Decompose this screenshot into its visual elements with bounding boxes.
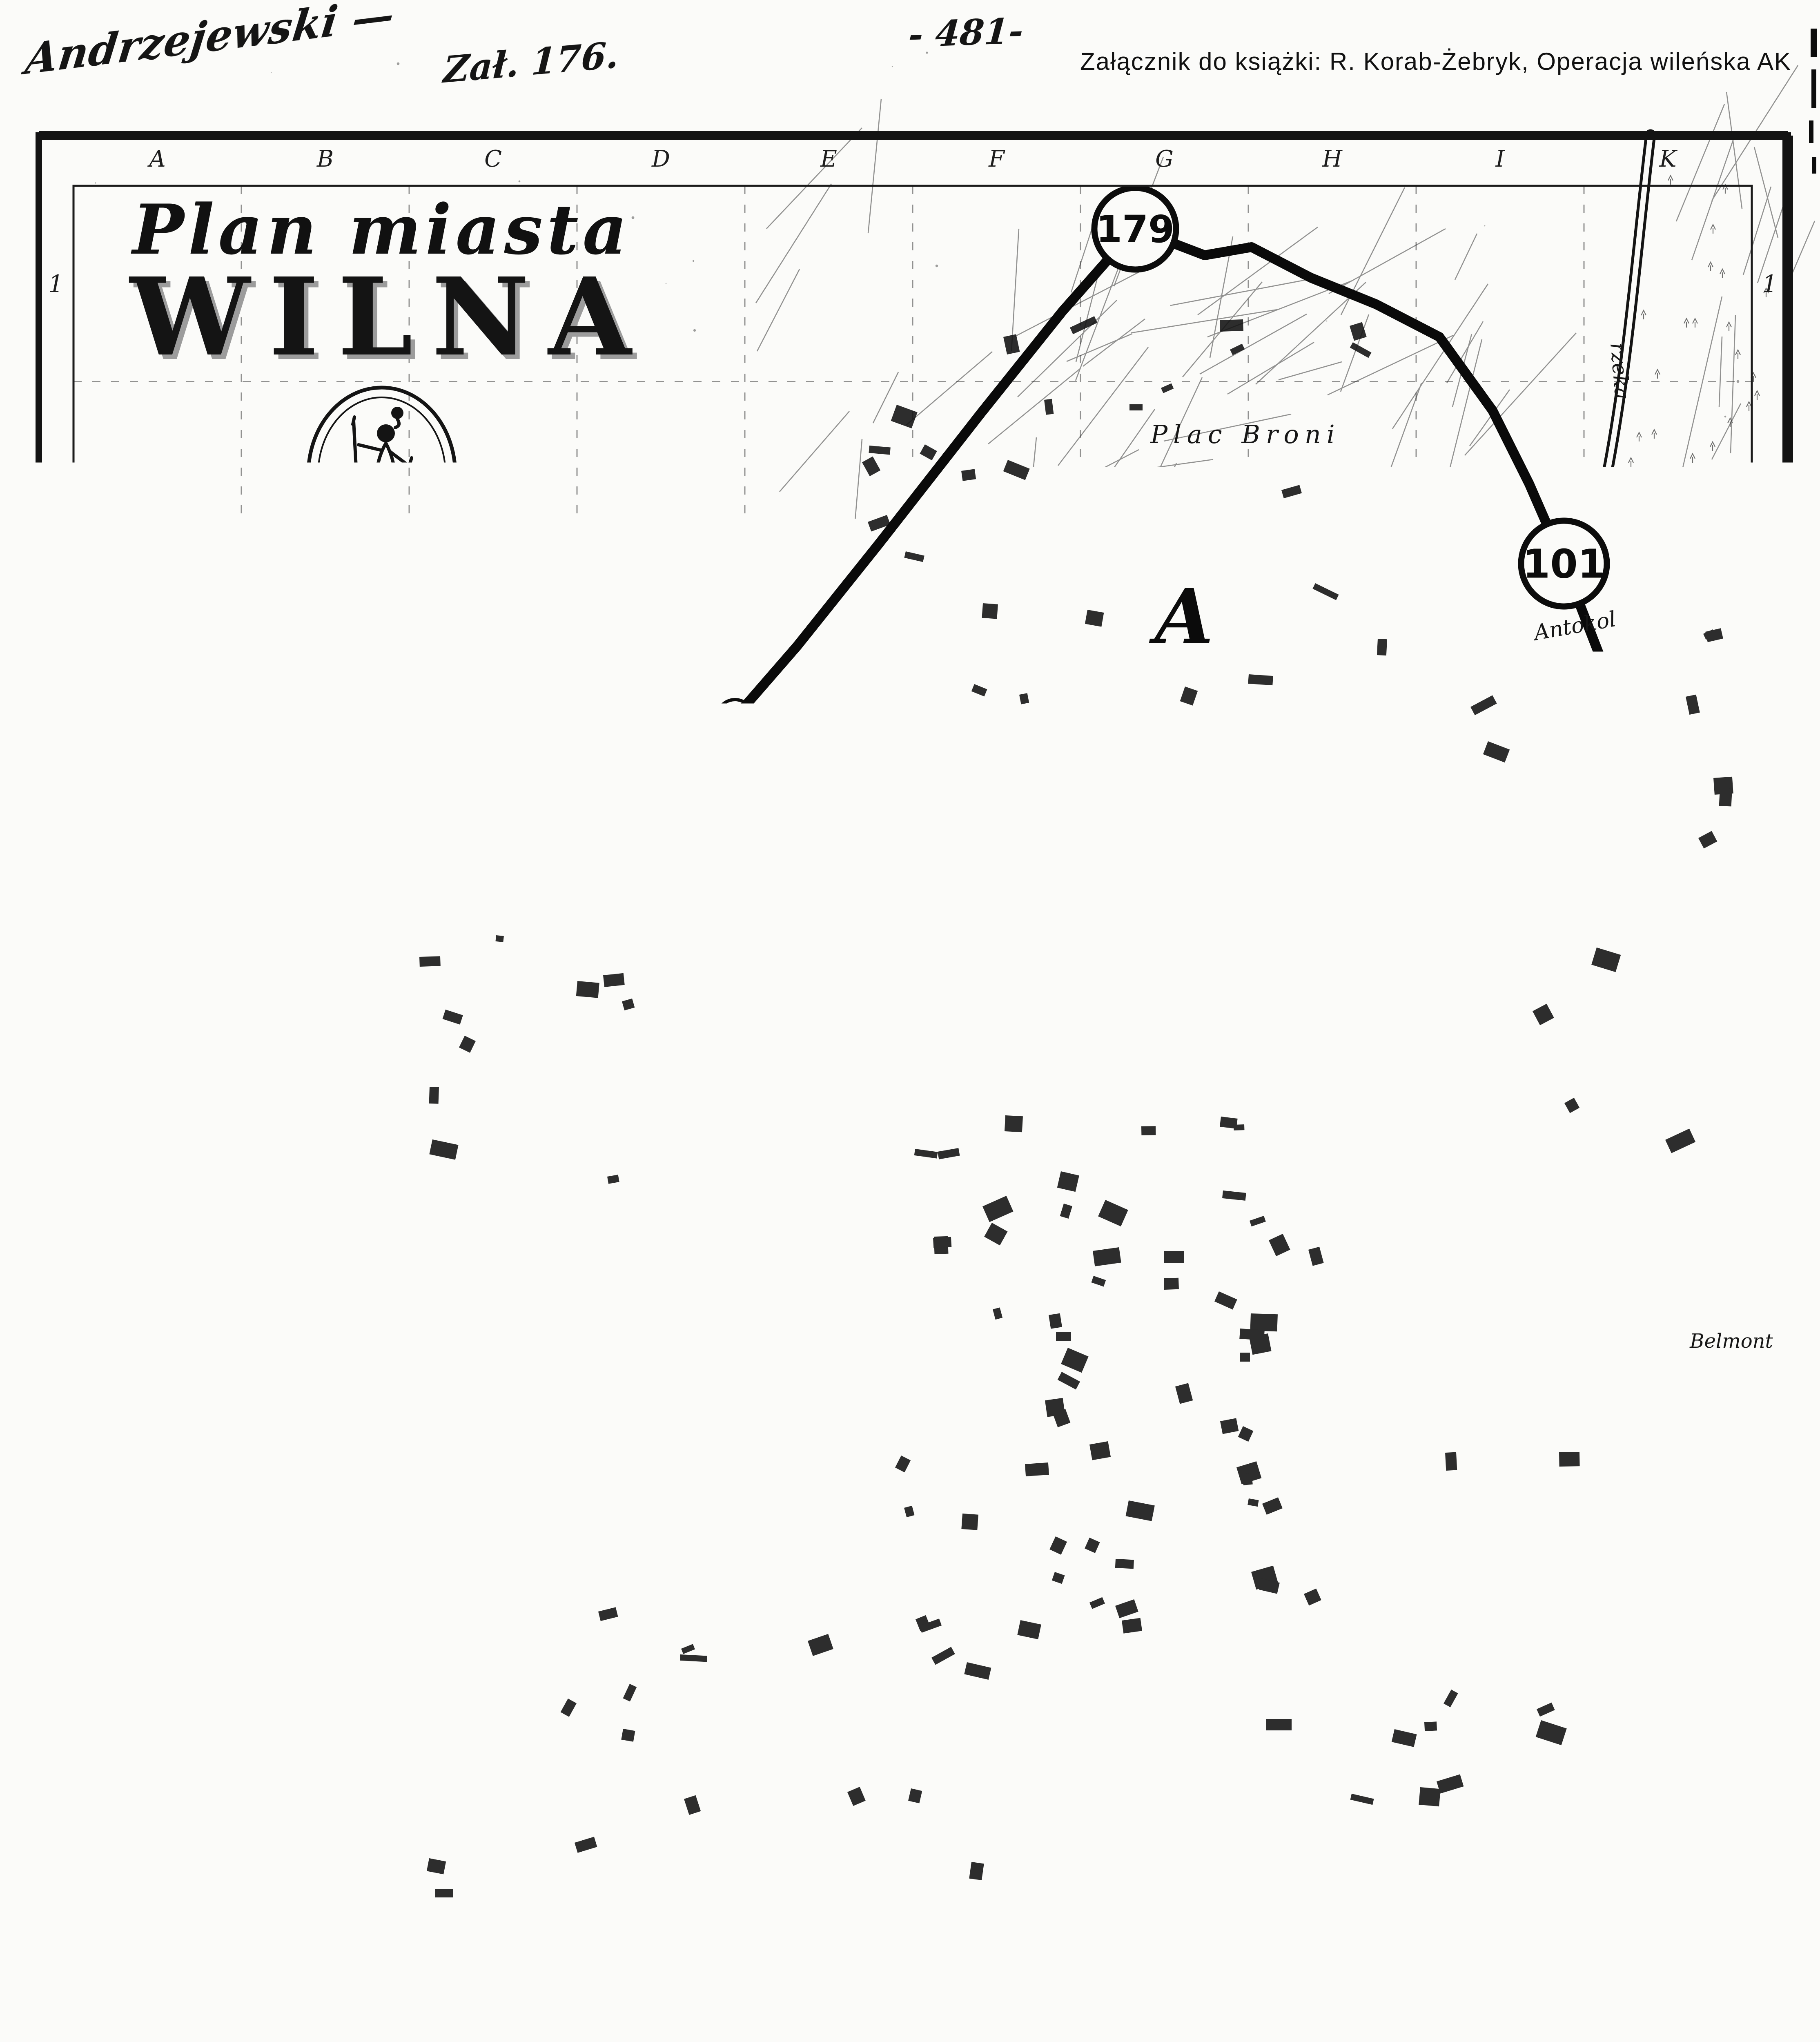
- tree-icon: [226, 1630, 231, 1639]
- street-line: [1041, 1117, 1188, 1127]
- street-line: [472, 1140, 521, 1191]
- building-block: [1049, 1313, 1062, 1329]
- building-block: [575, 1837, 597, 1853]
- tree-icon: [364, 1558, 369, 1567]
- place-label: Góra Bouffałowa: [784, 1241, 971, 1280]
- tree-icon: [319, 1400, 324, 1409]
- sector-letter-C: C: [859, 1458, 921, 1549]
- strongpoint-number: 106: [1660, 898, 1738, 941]
- saint-christopher-figure: [331, 407, 437, 553]
- street-line: [1309, 1342, 1472, 1361]
- street-line: [617, 938, 689, 1089]
- tree-icon: [1684, 319, 1689, 328]
- tree-icon: [295, 1315, 300, 1324]
- building-block: [1164, 1278, 1179, 1290]
- grid-number: 3: [1762, 662, 1778, 689]
- tree-icon: [1639, 474, 1644, 483]
- street-line: [1337, 1486, 1427, 1528]
- tree-icon: [1735, 350, 1740, 359]
- building-block: [1175, 1383, 1193, 1404]
- building-block: [1686, 695, 1700, 715]
- railway-path: [286, 1756, 1000, 2042]
- street-line: [1023, 1582, 1087, 1600]
- noise-dot: [1042, 1979, 1043, 1980]
- building-block: [1266, 1719, 1292, 1730]
- street-line: [725, 1579, 779, 1625]
- tree-icon: [1485, 862, 1490, 871]
- street-line: [817, 1766, 908, 1796]
- tree-icon: [168, 1318, 173, 1327]
- street-line: [757, 269, 800, 351]
- building-block: [1060, 1204, 1072, 1219]
- tree-icon: [270, 1351, 274, 1360]
- building-block: [1234, 1124, 1244, 1130]
- tree-icon: [247, 1402, 252, 1411]
- tree-icon: [1655, 370, 1660, 379]
- building-block: [1392, 1729, 1417, 1747]
- tree-icon: [1690, 454, 1695, 463]
- building-block: [419, 956, 441, 967]
- street-line: [1108, 459, 1213, 474]
- tree-icon: [1599, 1147, 1604, 1156]
- tree-icon: [264, 1621, 269, 1630]
- noise-dot: [627, 1453, 628, 1454]
- tree-icon: [55, 1906, 60, 1915]
- tree-icon: [1444, 1085, 1449, 1094]
- street-line: [1300, 1400, 1406, 1420]
- tree-icon: [1435, 1216, 1439, 1225]
- street-line: [1122, 1593, 1259, 1625]
- street-line: [859, 1123, 909, 1135]
- street-line: [963, 1407, 1097, 1421]
- building-block: [1085, 1538, 1100, 1553]
- building-block: [969, 1862, 984, 1880]
- tree-icon: [513, 1345, 518, 1354]
- handwritten-page-number: - 481-: [907, 10, 1025, 56]
- building-block: [1377, 639, 1387, 655]
- street-line: [751, 1288, 827, 1302]
- noise-dot: [1484, 225, 1486, 227]
- tree-icon: [228, 1354, 233, 1363]
- building-block: [1058, 1372, 1080, 1389]
- place-label: Boisko: [1363, 1139, 1420, 1166]
- street-line: [1090, 1520, 1239, 1541]
- tree-icon: [92, 930, 97, 939]
- tree-icon: [281, 1618, 286, 1627]
- tree-icon: [1720, 492, 1725, 501]
- tree-icon: [149, 1237, 154, 1246]
- tree-icon: [197, 1825, 202, 1834]
- tree-icon: [1630, 476, 1635, 485]
- tree-icon: [1693, 1207, 1697, 1216]
- grid-letter: I: [1495, 146, 1505, 172]
- tree-icon: [137, 1025, 142, 1034]
- noise-dot: [502, 1814, 503, 1816]
- street-line: [1195, 1313, 1246, 1326]
- tree-icon: [145, 1296, 150, 1305]
- building-block: [621, 1729, 635, 1742]
- building-block: [680, 1654, 707, 1662]
- street-line: [1456, 948, 1506, 987]
- strongpoint-number: 128: [1390, 1817, 1468, 1860]
- tree-icon: [379, 1471, 384, 1480]
- tree-icon: [1720, 269, 1725, 278]
- tree-icon: [1628, 982, 1633, 991]
- street-line: [1004, 1389, 1082, 1403]
- building-block: [1240, 1353, 1250, 1362]
- tree-icon: [1467, 984, 1472, 993]
- street-line: [896, 1369, 987, 1376]
- noise-dot: [1461, 898, 1462, 900]
- street-line: [1031, 437, 1036, 488]
- place-label: Zakręt: [274, 1485, 361, 1522]
- tree-icon: [183, 1442, 187, 1451]
- tree-icon: [379, 1588, 384, 1597]
- strongpoint-number: 101: [1523, 541, 1605, 587]
- building-block: [1350, 342, 1372, 358]
- building-block: [429, 1139, 458, 1160]
- tree-icon: [202, 1313, 207, 1322]
- street-line: [1129, 520, 1177, 549]
- street-line: [1270, 500, 1381, 542]
- noise-dot: [629, 1356, 630, 1358]
- noise-dot: [1025, 1262, 1027, 1264]
- noise-dot: [341, 766, 342, 768]
- tree-icon: [278, 1795, 283, 1803]
- tree-icon: [555, 1436, 559, 1445]
- building-block: [1019, 693, 1029, 704]
- tree-icon: [125, 1567, 129, 1576]
- tree-icon: [1611, 736, 1615, 745]
- building-block: [891, 405, 918, 428]
- street-line: [1211, 501, 1267, 600]
- tree-icon: [468, 1426, 473, 1435]
- tree-icon: [202, 1666, 207, 1675]
- building-block: [1164, 1251, 1184, 1263]
- tree-icon: [1601, 1184, 1606, 1193]
- tree-icon: [1611, 936, 1615, 945]
- street-line: [1673, 652, 1701, 725]
- grid-letter: E: [820, 146, 837, 172]
- street-line: [1206, 1355, 1258, 1364]
- building-block: [684, 1795, 701, 1815]
- street-line: [840, 1594, 945, 1641]
- tree-icon: [255, 1279, 260, 1288]
- street-line: [710, 1256, 766, 1298]
- street-line: [1152, 484, 1270, 586]
- building-block: [1057, 1171, 1079, 1192]
- building-block: [1705, 628, 1723, 642]
- grid-letter: F: [988, 146, 1005, 172]
- street-line: [1331, 1639, 1388, 1695]
- street-line: [483, 828, 488, 901]
- street-line: [606, 1829, 744, 1899]
- building-block: [1222, 1190, 1246, 1201]
- building-block: [1045, 1398, 1065, 1417]
- noise-dot: [1350, 838, 1351, 840]
- street-line: [1709, 604, 1757, 765]
- street-line: [950, 1528, 1057, 1576]
- tree-icon: [302, 958, 307, 967]
- tree-icon: [229, 1139, 234, 1148]
- street-line: [724, 1212, 801, 1251]
- building-block: [1483, 741, 1510, 762]
- building-block: [1129, 404, 1143, 410]
- tree-icon: [89, 1820, 94, 1829]
- building-block: [1214, 1291, 1237, 1310]
- noise-dot: [87, 2000, 89, 2001]
- river-wilenka-core: [1280, 1009, 1793, 1526]
- header-caption: Załącznik do książki: R. Korab-Żebryk, O…: [1080, 47, 1791, 76]
- building-block: [1238, 1426, 1254, 1442]
- tree-icon: [129, 1087, 134, 1096]
- street-line: [839, 1827, 917, 1870]
- building-block: [1085, 610, 1104, 627]
- tree-icon: [265, 1335, 270, 1344]
- street-line: [1329, 229, 1446, 294]
- noise-dot: [864, 1112, 866, 1114]
- tree-icon: [158, 1430, 163, 1439]
- street-line: [1149, 1067, 1239, 1109]
- tree-icon: [288, 1733, 293, 1742]
- building-block: [429, 1087, 439, 1104]
- street-line: [868, 99, 881, 233]
- street-line: [1540, 764, 1620, 858]
- street-line: [1676, 104, 1724, 221]
- street-line: [1692, 136, 1735, 260]
- tree-icon: [275, 1113, 280, 1122]
- place-label: Nowy Świat: [1083, 1968, 1219, 2003]
- tree-icon: [248, 1580, 253, 1589]
- tree-icon: [1637, 432, 1642, 441]
- tree-icon: [206, 1384, 211, 1393]
- noise-dot: [149, 1008, 151, 1010]
- street-line: [564, 925, 595, 1023]
- building-block: [598, 1607, 618, 1621]
- noise-dot: [280, 1012, 281, 1014]
- grid-number: 10: [41, 2032, 71, 2042]
- scan-artifact: [1812, 157, 1816, 174]
- tree-icon: [1439, 1173, 1444, 1182]
- street-line: [612, 1120, 737, 1127]
- district-a-map-label: dzielnica „A”: [955, 739, 1283, 792]
- building-block: [1126, 1500, 1155, 1521]
- noise-dot: [1612, 752, 1613, 753]
- tree-icon: [307, 1325, 312, 1334]
- street-line: [766, 128, 862, 229]
- noise-dot: [423, 1255, 426, 1257]
- street-line: [1307, 1610, 1374, 1640]
- noise-dot: [240, 1421, 243, 1423]
- place-label: Ponarskie: [335, 1667, 448, 1703]
- tree-icon: [178, 1446, 183, 1455]
- grid-number: 1: [49, 270, 64, 298]
- tree-icon: [503, 1495, 508, 1504]
- building-block: [862, 456, 880, 476]
- street-line: [967, 1748, 1047, 1790]
- tree-icon: [566, 1451, 571, 1460]
- tree-icon: [273, 1391, 278, 1400]
- street-line: [483, 1025, 550, 1131]
- tree-icon: [534, 1627, 539, 1636]
- tree-icon: [378, 1625, 383, 1634]
- grid-number: 2: [1762, 466, 1778, 493]
- tree-icon: [1644, 983, 1649, 992]
- street-line: [1274, 1286, 1364, 1324]
- noise-dot: [0, 1048, 2, 1050]
- tree-icon: [220, 1373, 225, 1382]
- grid-number: 10: [1755, 2032, 1785, 2042]
- street-line: [1359, 479, 1389, 568]
- noise-dot: [1778, 1776, 1779, 1777]
- tree-icon: [141, 1080, 146, 1089]
- building-block: [1559, 1452, 1580, 1467]
- street-line: [841, 655, 895, 699]
- building-block: [1248, 674, 1273, 685]
- noise-dot: [382, 1018, 384, 1021]
- tree-icon: [168, 1559, 173, 1568]
- building-block: [904, 551, 924, 562]
- tree-icon: [130, 1267, 135, 1276]
- noise-dot: [1326, 321, 1328, 322]
- tree-icon: [132, 947, 137, 956]
- grid-number: 8: [1762, 1641, 1778, 1668]
- building-block: [964, 1662, 991, 1680]
- tree-icon: [1670, 1112, 1675, 1121]
- street-line: [1279, 362, 1342, 380]
- noise-dot: [1629, 1890, 1631, 1893]
- scan-artifact: [1811, 69, 1816, 108]
- strongpoint-number: 179: [1096, 207, 1174, 251]
- tree-icon: [1445, 1147, 1450, 1156]
- street-line: [1399, 1608, 1497, 1624]
- strongpoint-number: 116: [1607, 1321, 1689, 1367]
- place-label: Rybaki: [1030, 887, 1109, 919]
- street-line: [878, 584, 889, 687]
- tree-icon: [84, 1905, 89, 1914]
- city-seal-icon: [302, 385, 461, 565]
- building-block: [1350, 1794, 1374, 1805]
- street-line: [1365, 383, 1421, 540]
- building-block: [982, 1196, 1014, 1222]
- scale-line: SKALA 1 : 12500: [69, 664, 694, 692]
- tree-icon: [226, 1301, 231, 1310]
- tree-icon: [194, 990, 198, 999]
- noise-dot: [1526, 1622, 1527, 1623]
- building-block: [1098, 1200, 1128, 1226]
- tree-icon: [503, 1477, 508, 1486]
- tree-icon: [220, 1455, 225, 1464]
- place-label: Szkaplerne: [1051, 2040, 1169, 2042]
- tree-icon: [472, 1297, 477, 1306]
- street-line: [968, 1380, 1045, 1390]
- tree-icon: [1708, 262, 1713, 271]
- tree-icon: [1722, 1061, 1727, 1070]
- tree-icon: [1641, 310, 1646, 319]
- building-block: [603, 973, 625, 987]
- tree-icon: [89, 1422, 94, 1431]
- map-title-wilna: WILNA: [69, 266, 694, 368]
- grid-letter: H: [1322, 146, 1343, 172]
- tree-icon: [217, 1361, 222, 1370]
- street-line: [1361, 522, 1374, 630]
- tree-icon: [159, 1613, 164, 1622]
- street-line: [1200, 314, 1307, 374]
- tree-icon: [260, 1375, 265, 1384]
- scan-artifact: [1809, 120, 1813, 143]
- tree-icon: [535, 1534, 539, 1543]
- building-block: [938, 1148, 960, 1159]
- street-line: [1317, 1194, 1399, 1202]
- tree-icon: [1489, 1187, 1494, 1196]
- building-block: [623, 1684, 637, 1701]
- building-block: [1122, 1618, 1142, 1634]
- tree-icon: [263, 1690, 268, 1699]
- building-block: [495, 935, 503, 942]
- street-line: [1083, 319, 1145, 366]
- street-line: [1067, 334, 1132, 361]
- tree-icon: [1693, 319, 1697, 328]
- street-line: [522, 1014, 538, 1094]
- building-block: [1665, 1129, 1695, 1153]
- tree-icon: [1631, 1010, 1635, 1019]
- street-line: [1314, 1367, 1409, 1387]
- street-line: [389, 1121, 403, 1199]
- building-block: [1017, 1620, 1041, 1639]
- tree-icon: [122, 1147, 127, 1156]
- tree-icon: [197, 1109, 202, 1118]
- tree-icon: [482, 1379, 487, 1388]
- building-block: [1444, 1690, 1458, 1707]
- noise-dot: [1724, 416, 1726, 418]
- street-line: [1307, 522, 1318, 638]
- street-line: [1274, 1103, 1414, 1116]
- building-block: [908, 1788, 922, 1803]
- street-line: [451, 1008, 510, 1130]
- tree-icon: [566, 1463, 571, 1472]
- street-line: [977, 1856, 1049, 1904]
- building-block: [1536, 1720, 1567, 1745]
- tree-icon: [193, 1115, 198, 1124]
- map-title-block: Plan miasta WILNA: [69, 184, 694, 733]
- building-block: [1115, 1559, 1134, 1569]
- street-line: [1247, 1366, 1394, 1379]
- street-line: [1011, 229, 1019, 351]
- street-line: [1392, 284, 1488, 429]
- tree-icon: [152, 966, 157, 975]
- sector-letter-A: A: [1149, 572, 1214, 661]
- tree-icon: [1500, 860, 1505, 869]
- street-line: [756, 184, 831, 303]
- tree-icon: [280, 1557, 285, 1566]
- grid-number: 3: [49, 662, 64, 689]
- tree-icon: [177, 1487, 182, 1496]
- observatory-map-icon: [470, 1333, 510, 1379]
- tree-icon: [260, 1305, 265, 1314]
- tree-icon: [109, 1224, 114, 1233]
- street-line: [826, 1313, 985, 1333]
- tree-icon: [469, 1611, 474, 1620]
- noise-dot: [1590, 1062, 1592, 1064]
- noise-dot: [519, 181, 521, 183]
- tree-icon: [76, 1067, 81, 1076]
- street-line: [1214, 542, 1339, 593]
- street-line: [636, 1034, 642, 1147]
- building-block: [1091, 1276, 1106, 1286]
- street-line: [851, 439, 862, 568]
- building-block: [1093, 1247, 1121, 1266]
- noise-dot: [892, 66, 893, 67]
